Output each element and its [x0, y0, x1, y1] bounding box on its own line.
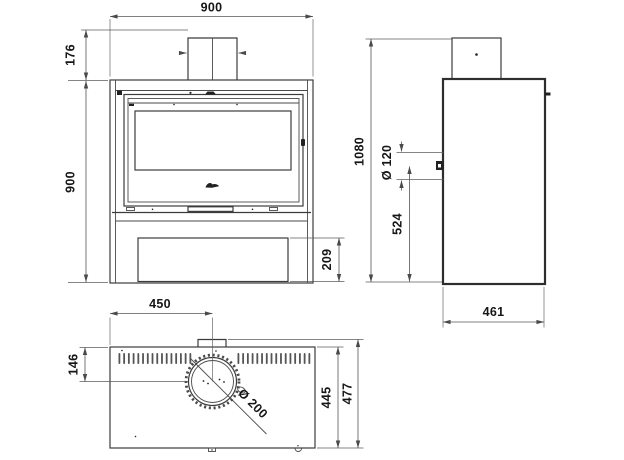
vent-slots-left	[119, 353, 192, 364]
front-door	[117, 91, 305, 207]
dim-rear-flue-height: 524	[391, 213, 405, 235]
vent-slots-right	[238, 353, 311, 364]
dim-body-depth: 445	[320, 387, 334, 409]
log-store-opening	[138, 238, 288, 282]
top-view: Ø 200 450 146 445 477	[67, 297, 364, 452]
dim-total-height: 1080	[353, 137, 367, 166]
dim-depth: 461	[483, 305, 505, 319]
dim-rear-flue-diameter: Ø 120	[380, 145, 394, 181]
dim-front-flue-section: 176	[64, 44, 78, 66]
door-latch	[205, 92, 216, 95]
side-chimney-box	[452, 38, 501, 79]
front-pedestal	[112, 213, 311, 282]
top-dimensions: 450 146 445 477	[67, 297, 364, 448]
dim-flue-from-left: 450	[149, 297, 171, 311]
flue-center-mark	[475, 53, 478, 56]
stove-dimension-drawing: 900 176 900 209 1080	[0, 0, 624, 460]
dim-flue-collar-diameter: Ø 200	[235, 386, 270, 421]
dim-front-width: 900	[201, 1, 223, 15]
top-chimney-outline	[198, 340, 226, 348]
rear-flue-stub	[436, 161, 444, 170]
front-chimney-pipe	[179, 38, 246, 80]
technical-drawing-page: 900 176 900 209 1080	[0, 0, 624, 460]
door-handle	[301, 139, 305, 146]
damper-handle	[545, 93, 551, 96]
front-view: 900 176 900 209	[64, 1, 345, 284]
top-small-details	[121, 350, 301, 452]
side-body-outline	[443, 79, 545, 284]
front-vent-strip	[127, 207, 278, 212]
door-glass	[135, 111, 291, 170]
flue-collar: Ø 200	[186, 355, 270, 434]
dim-overall-depth: 477	[341, 383, 355, 405]
door-hinge-top	[117, 91, 122, 96]
dim-log-store-height: 209	[320, 249, 334, 271]
brand-logo	[206, 183, 220, 188]
dim-front-height: 900	[64, 171, 78, 193]
dim-flue-from-front: 146	[67, 354, 81, 376]
side-view: 1080 Ø 120 524 461	[353, 38, 551, 328]
